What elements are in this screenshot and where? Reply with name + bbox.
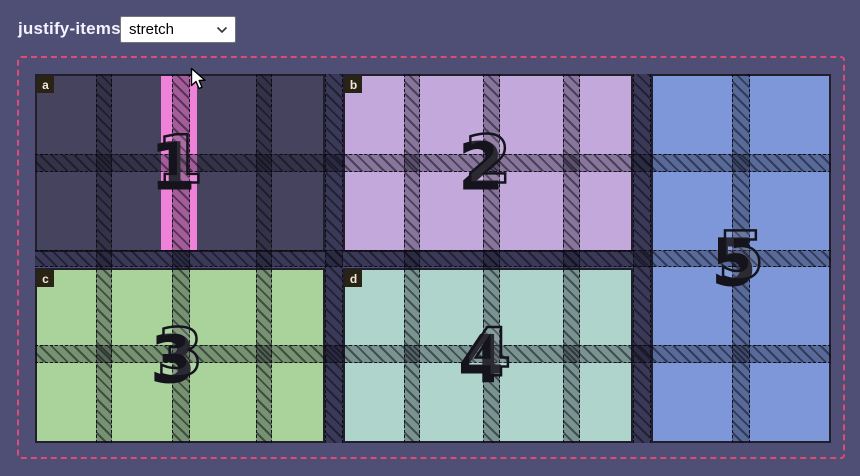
- item-label-badge: b: [345, 76, 362, 93]
- toolbar: justify-items stretch: [0, 0, 860, 56]
- item-label-badge: c: [37, 270, 54, 287]
- select-value: stretch: [129, 21, 174, 38]
- mouse-cursor-icon: [190, 67, 207, 96]
- item-numeral-2: 2: [465, 127, 511, 193]
- item-numeral-5: 5: [718, 223, 764, 289]
- justify-items-select[interactable]: stretch: [120, 16, 236, 43]
- grid-track-overlay-horizontal: [35, 345, 831, 363]
- item-label-badge: d: [345, 270, 362, 287]
- grid-track-overlay-horizontal-gap: [35, 250, 831, 267]
- property-label: justify-items: [18, 19, 121, 39]
- item-numeral-4: 4: [465, 320, 511, 386]
- chevron-down-icon: [216, 26, 228, 34]
- grid-track-overlay-horizontal: [35, 154, 831, 172]
- item-numeral-1: 1: [157, 127, 203, 193]
- item-numeral-3: 3: [157, 320, 203, 386]
- item-label-badge: a: [37, 76, 54, 93]
